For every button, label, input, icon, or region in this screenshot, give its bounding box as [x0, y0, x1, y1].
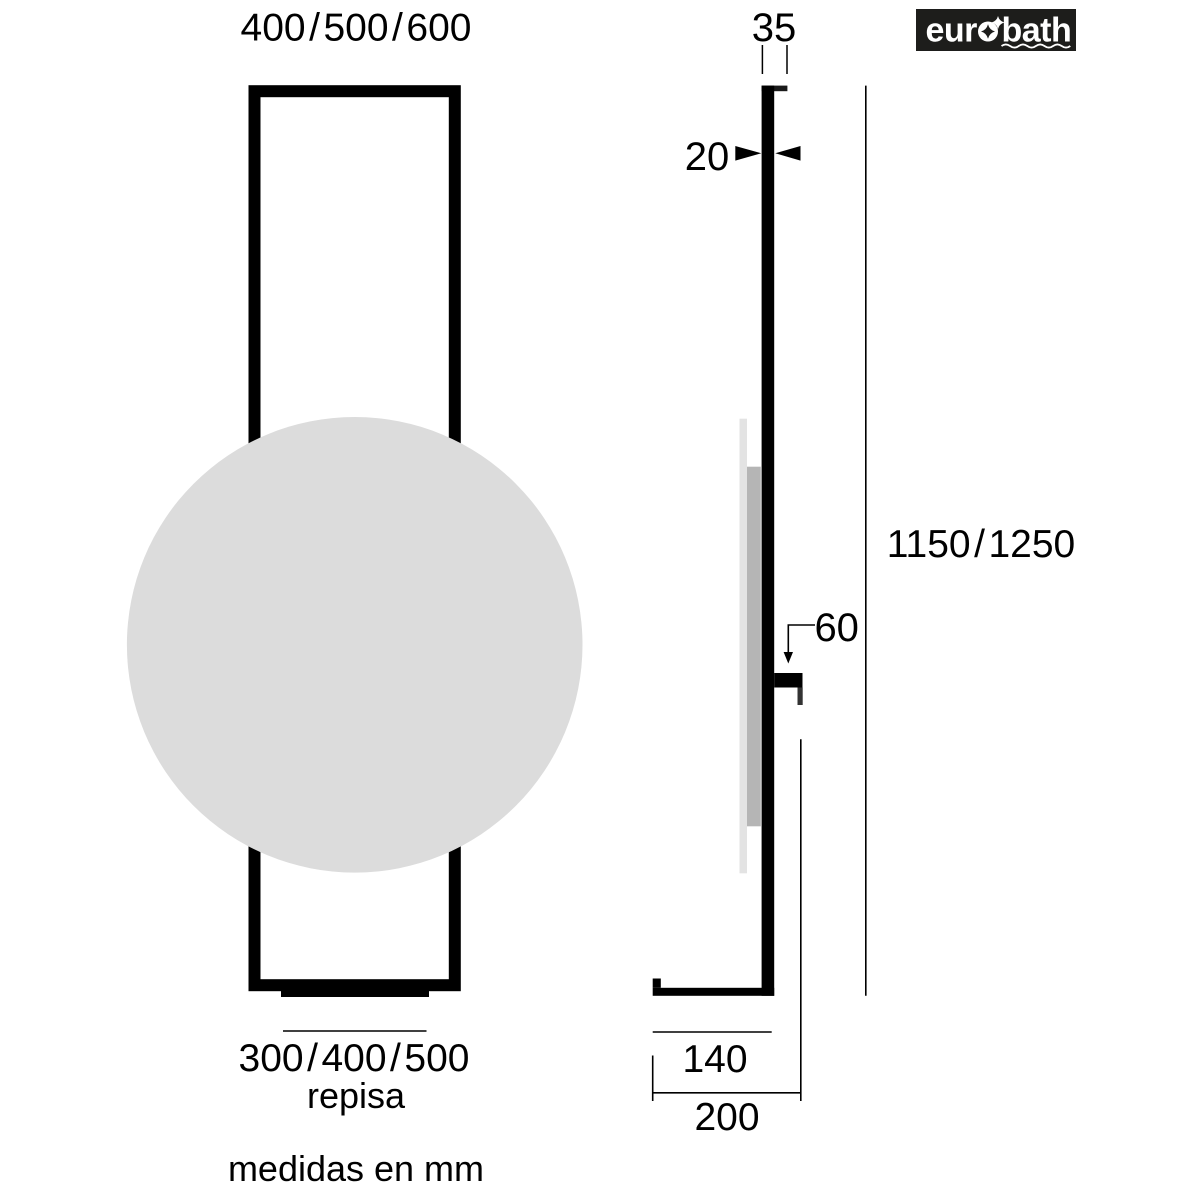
svg-text:35: 35: [752, 6, 797, 50]
svg-text:20: 20: [685, 135, 730, 179]
svg-text:medidas en mm: medidas en mm: [228, 1148, 484, 1189]
svg-text:repisa: repisa: [307, 1075, 406, 1116]
svg-text:400/500/600: 400/500/600: [241, 7, 472, 50]
svg-text:1150/1250: 1150/1250: [887, 523, 1075, 566]
svg-text:200: 200: [694, 1096, 759, 1139]
svg-text:eur: eur: [926, 12, 978, 50]
svg-text:300/400/500: 300/400/500: [239, 1037, 470, 1080]
svg-text:140: 140: [682, 1038, 747, 1081]
svg-text:bath: bath: [1002, 12, 1072, 50]
svg-text:60: 60: [814, 606, 859, 650]
